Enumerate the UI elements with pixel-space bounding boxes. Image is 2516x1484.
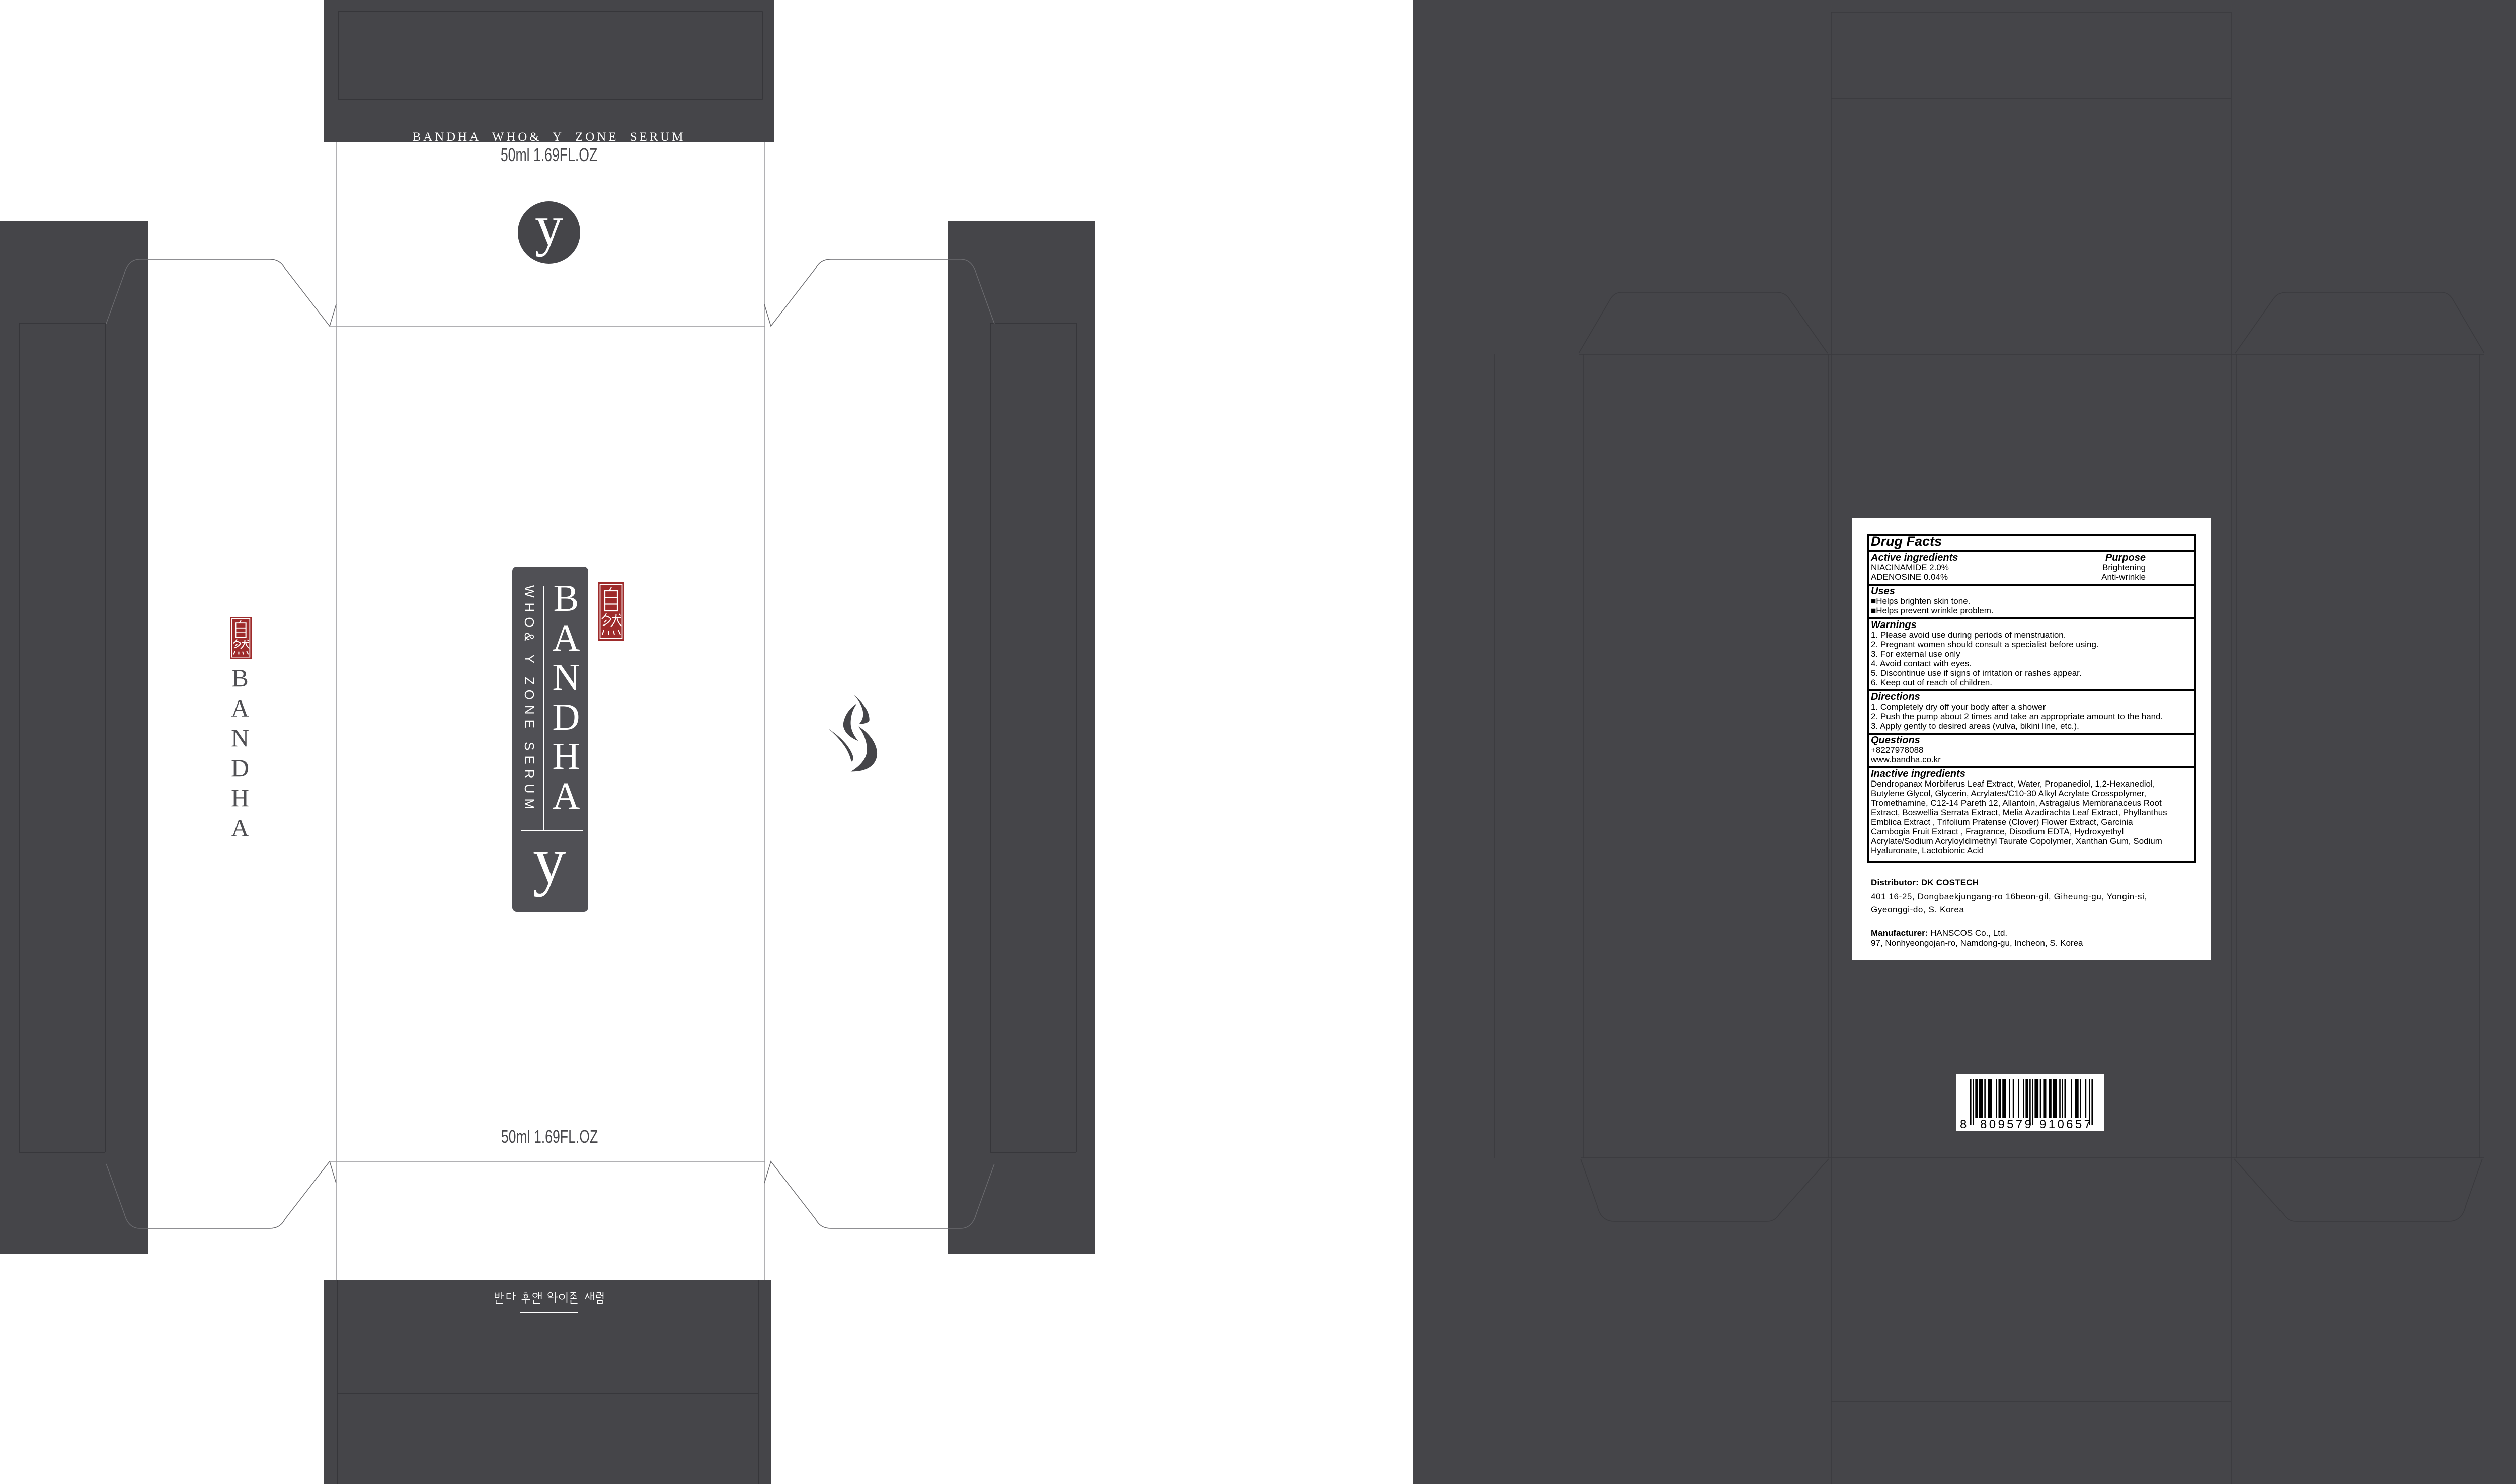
svg-text:8: 8 [1960, 1118, 1967, 1131]
